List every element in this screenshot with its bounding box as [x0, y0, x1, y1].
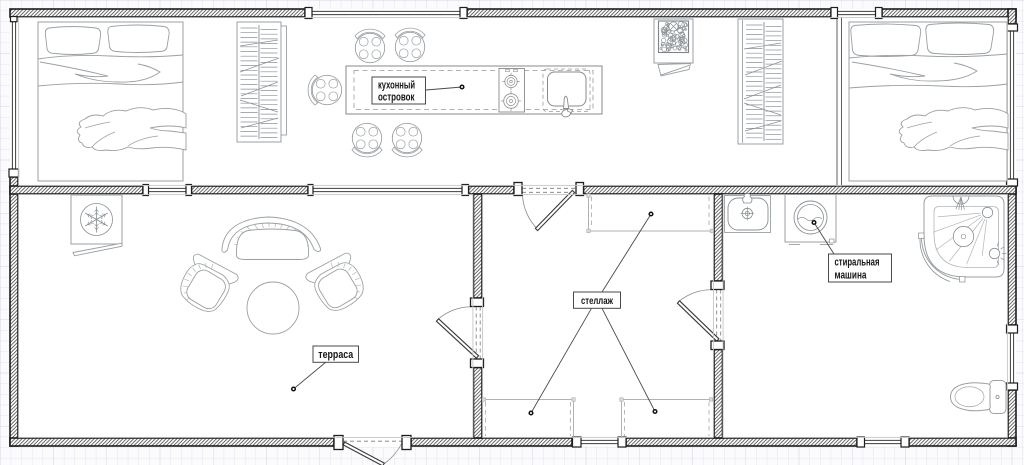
- svg-text:машина: машина: [835, 270, 868, 282]
- svg-text:островок: островок: [378, 91, 415, 103]
- svg-text:терраса: терраса: [318, 349, 354, 361]
- svg-text:кухонный: кухонный: [378, 80, 415, 92]
- svg-text:стеллаж: стеллаж: [581, 295, 613, 307]
- svg-text:стиральная: стиральная: [835, 256, 880, 268]
